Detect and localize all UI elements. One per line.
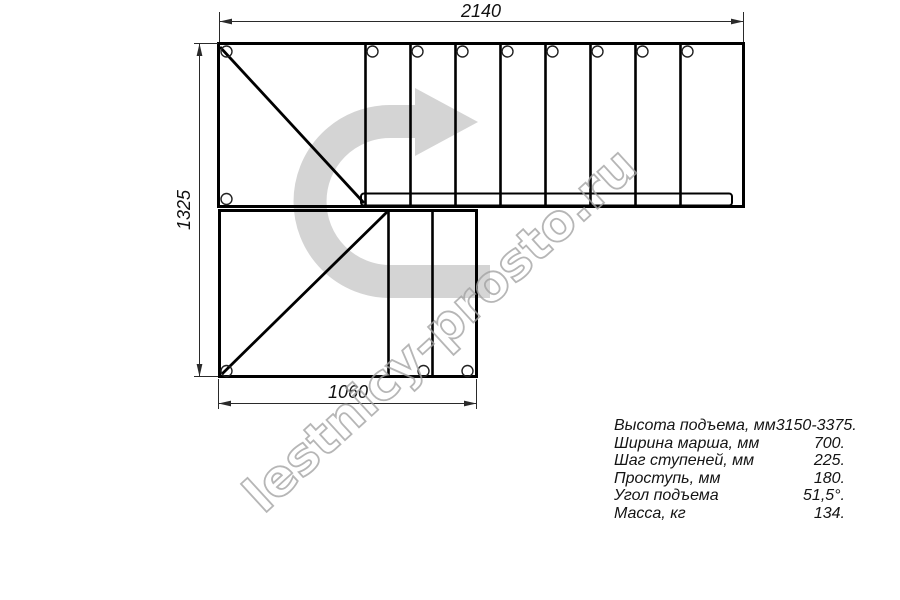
spec-label: Шаг ступеней, мм <box>614 452 754 470</box>
dimension-top: 2140 <box>220 1 744 42</box>
direction-arrow-head <box>415 88 478 156</box>
spec-table: Высота подъема, мм 3150-3375. Ширина мар… <box>614 417 845 523</box>
spec-label: Угол подъема <box>614 487 719 505</box>
spec-value: 51,5°. <box>803 487 845 505</box>
spec-value: 700. <box>814 435 845 453</box>
spec-label: Высота подъема, мм <box>614 417 776 435</box>
spec-row-step-pitch: Шаг ступеней, мм 225. <box>614 452 845 470</box>
dimension-bottom-arrow-right <box>464 401 477 407</box>
spec-value: 134. <box>814 505 845 523</box>
spec-row-angle: Угол подъема 51,5°. <box>614 487 845 505</box>
spec-row-height: Высота подъема, мм 3150-3375. <box>614 417 845 435</box>
dimension-left-lines <box>194 44 218 377</box>
spec-value: 180. <box>814 470 845 488</box>
dimension-left: 1325 <box>174 44 218 377</box>
dimension-bottom-arrow-left <box>219 401 232 407</box>
dimension-top-arrow-right <box>731 19 744 25</box>
spec-value: 225. <box>814 452 845 470</box>
spec-row-march-width: Ширина марша, мм 700. <box>614 435 845 453</box>
dimension-left-arrow-top <box>197 44 203 57</box>
dimension-left-arrow-bottom <box>197 364 203 377</box>
spec-label: Ширина марша, мм <box>614 435 759 453</box>
direction-arrow-icon <box>310 88 490 282</box>
dimension-top-label: 2140 <box>460 1 501 21</box>
dimension-top-arrow-left <box>220 19 233 25</box>
spec-row-tread: Проступь, мм 180. <box>614 470 845 488</box>
spec-value: 3150-3375. <box>776 417 857 435</box>
spec-label: Проступь, мм <box>614 470 720 488</box>
spec-row-mass: Масса, кг 134. <box>614 505 845 523</box>
direction-arrow-shaft <box>310 122 490 282</box>
dimension-left-label: 1325 <box>174 189 194 230</box>
spec-label: Масса, кг <box>614 505 686 523</box>
